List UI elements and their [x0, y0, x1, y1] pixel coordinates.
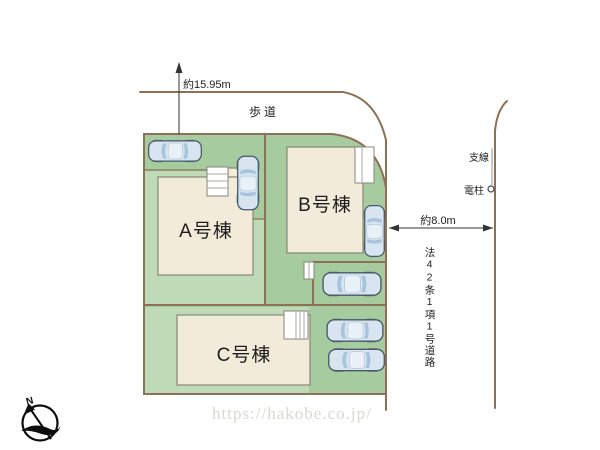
east-road-line: [495, 101, 507, 408]
building-b-label: B号棟: [285, 190, 365, 217]
watermark: https://hakobe.co.jp/: [212, 404, 372, 424]
site-plan-svg: [0, 0, 600, 450]
porch-b: [355, 147, 374, 183]
porch-a-steps: [207, 167, 228, 196]
building-c-label: C号棟: [177, 340, 311, 367]
car: [237, 156, 260, 209]
compass-icon: N: [12, 394, 66, 448]
north-dimension-label: 約15.95m: [183, 76, 231, 92]
utility-pole-circle: [488, 186, 494, 192]
car: [327, 319, 383, 343]
east-road-width-label: 約8.0m: [388, 212, 488, 228]
compass-north-letter: N: [25, 395, 35, 407]
road-designation-label: 法42条1項1号道路: [424, 247, 435, 357]
car: [329, 348, 385, 372]
car: [323, 272, 381, 297]
car: [364, 206, 385, 257]
dimension-arrow-north: [176, 62, 183, 134]
car: [149, 140, 202, 162]
site-plan: 約15.95m 歩道 支線 電柱 約8.0m 法42条1項1号道路 A号棟 B号…: [0, 0, 600, 450]
building-a-label: A号棟: [158, 216, 254, 243]
utility-pole-label: 電柱: [464, 182, 484, 197]
steps-b: [304, 262, 314, 279]
branch-line-label: 支線: [469, 149, 489, 164]
sidewalk-label: 歩道: [249, 103, 279, 120]
porch-c-steps: [284, 311, 308, 339]
